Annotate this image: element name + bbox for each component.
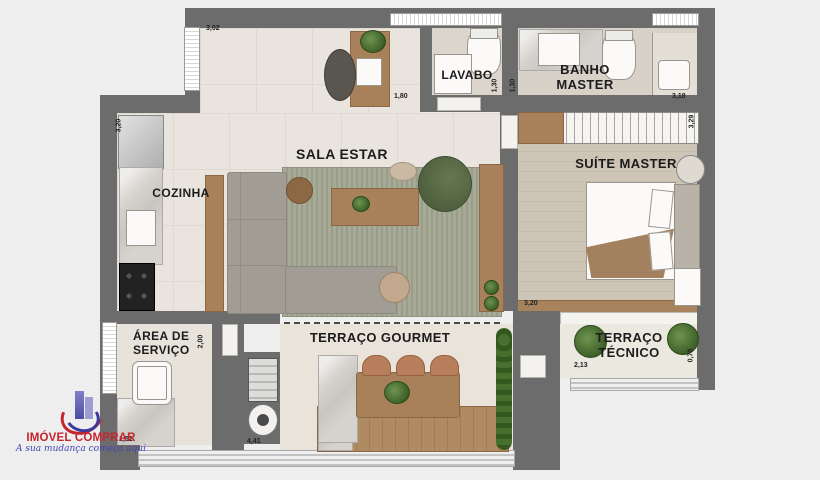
label-sala-estar: SALA ESTAR: [288, 146, 396, 163]
lavabo-toilet-tank: [470, 28, 498, 39]
brand-logo: IMÓVEL COMPRAR A sua mudança começa aqui: [6, 390, 156, 454]
dim-banho-width: 3,18: [672, 93, 686, 100]
brand-tagline: A sua mudança começa aqui: [6, 444, 156, 454]
coffee-table-plant-icon: [352, 196, 370, 212]
window-banho-top: [652, 13, 699, 26]
sofa: [227, 172, 287, 314]
dim-suite-width: 3,20: [524, 300, 538, 307]
desk-plant-icon: [360, 30, 386, 53]
dim-banho-height: 1,30: [509, 79, 516, 93]
label-servico-line2: SERVIÇO: [133, 343, 190, 357]
dining-table-plant-icon: [384, 381, 410, 404]
dim-lavabo-height: 1,30: [491, 79, 498, 93]
label-area-servico: ÁREA DE SERVIÇO: [133, 329, 203, 357]
label-terraco-gourmet: TERRAÇO GOURMET: [300, 330, 460, 345]
door-suite: [501, 115, 518, 149]
dining-chair-3: [430, 355, 459, 376]
coffee-table: [331, 188, 419, 226]
gourmet-hedge: [496, 328, 512, 450]
window-servico: [102, 322, 117, 394]
label-banho-line1: BANHO: [560, 62, 610, 77]
dim-hall-width: 3,02: [206, 25, 220, 32]
dining-chair-2: [396, 355, 425, 376]
sideboard-plant-icon: [484, 280, 499, 295]
label-lavabo: LAVABO: [436, 68, 498, 82]
armchair-green: [418, 156, 472, 212]
dim-gourmet-width: 4,41: [247, 438, 261, 445]
washer-round: [248, 404, 278, 436]
door-servico-gourmet: [222, 324, 238, 356]
banho-toilet-tank: [605, 30, 633, 41]
dim-lavabo-width: 1,80: [394, 93, 408, 100]
bed-pillow-top: [648, 189, 674, 229]
label-cozinha: COZINHA: [150, 186, 212, 200]
stove: [119, 263, 155, 311]
dining-chair-1: [362, 355, 391, 376]
desk-chair: [324, 49, 356, 101]
window-lavabo-top: [390, 13, 502, 26]
shower-tray: [658, 60, 690, 90]
fridge: [118, 115, 164, 169]
gourmet-counter: [318, 355, 358, 443]
side-table: [286, 177, 313, 204]
pouf: [379, 272, 410, 303]
label-servico-line1: ÁREA DE: [133, 329, 189, 343]
dim-suite-height: 3,29: [688, 115, 695, 129]
dim-cozinha-height: 3,20: [115, 119, 122, 133]
window-hall-left: [184, 27, 200, 91]
dim-servico-height: 2,00: [197, 335, 204, 349]
washer-dryer-stack: [248, 358, 278, 402]
bed-headboard: [674, 184, 700, 278]
dim-tecnico-width: 2,13: [574, 362, 588, 369]
tecnico-railing: [570, 378, 699, 391]
brand-logo-icon: [58, 390, 104, 432]
white-niche: [520, 355, 546, 378]
label-banho-line2: MASTER: [556, 77, 613, 92]
label-suite-master: SUÍTE MASTER: [560, 156, 692, 171]
desk-monitor: [356, 58, 382, 86]
bed-pillow-bottom: [648, 231, 673, 271]
suite-bench: [674, 268, 701, 306]
stool: [389, 162, 417, 181]
label-banho-master: BANHO MASTER: [544, 62, 626, 93]
label-tecnico-line1: TERRAÇO: [595, 330, 662, 345]
label-terraco-tecnico: TERRAÇO TÉCNICO: [570, 330, 688, 361]
label-tecnico-line2: TÉCNICO: [598, 345, 659, 360]
door-lavabo: [437, 97, 481, 111]
dim-tecnico-height: 0,70: [687, 349, 694, 363]
gourmet-railing: [138, 450, 515, 467]
wall-step: [100, 95, 200, 113]
wardrobe-shelf: [518, 112, 564, 144]
wall-mid-post: [513, 311, 560, 470]
sideboard-plant2-icon: [484, 296, 499, 311]
kitchen-sink: [126, 210, 156, 246]
